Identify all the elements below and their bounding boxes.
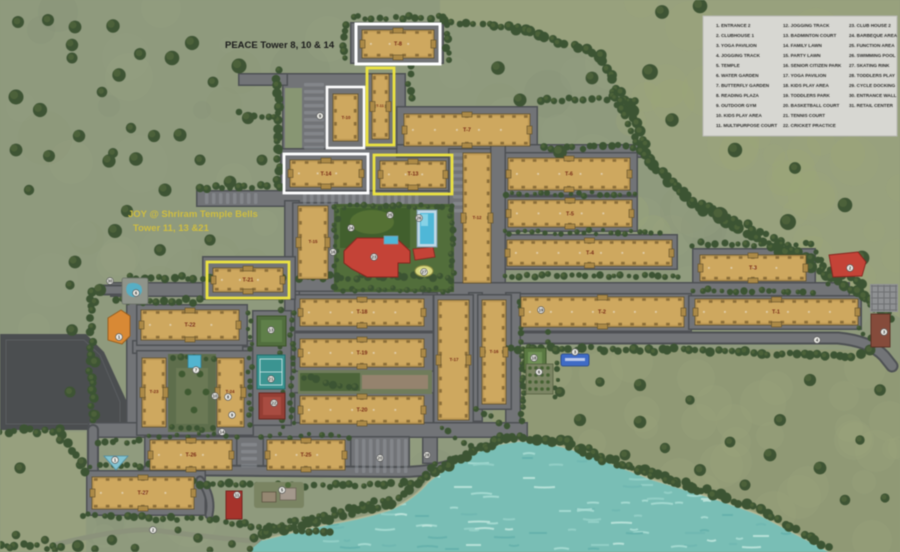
svg-text:T-27: T-27	[137, 490, 148, 496]
svg-text:T-26: T-26	[185, 452, 196, 458]
svg-text:T-25: T-25	[300, 452, 311, 458]
svg-text:8. READING PLAZA: 8. READING PLAZA	[716, 93, 760, 98]
svg-text:T-16: T-16	[489, 349, 499, 354]
svg-text:9. OUTDOOR GYM: 9. OUTDOOR GYM	[716, 103, 756, 108]
svg-text:17. YOGA PAVILION: 17. YOGA PAVILION	[783, 73, 827, 78]
svg-text:T-18: T-18	[356, 309, 367, 315]
svg-text:14: 14	[220, 430, 225, 435]
svg-text:26: 26	[417, 216, 422, 221]
svg-text:T-3: T-3	[749, 265, 757, 271]
svg-text:T-1: T-1	[772, 309, 780, 315]
svg-text:19. TODDLERS PARK: 19. TODDLERS PARK	[783, 93, 830, 98]
svg-text:21: 21	[269, 377, 274, 382]
svg-text:T-11: T-11	[376, 103, 385, 108]
svg-text:T-15: T-15	[308, 239, 318, 244]
svg-text:T-2: T-2	[598, 309, 606, 315]
svg-text:T-22: T-22	[184, 322, 195, 328]
svg-text:2. CLUBHOUSE 1: 2. CLUBHOUSE 1	[716, 33, 754, 38]
svg-text:19: 19	[539, 308, 544, 313]
svg-text:22: 22	[272, 401, 277, 406]
svg-text:6. WATER GARDEN: 6. WATER GARDEN	[716, 73, 759, 78]
svg-text:16. SENIOR CITIZEN PARK: 16. SENIOR CITIZEN PARK	[783, 63, 842, 68]
svg-text:T-13: T-13	[407, 171, 418, 177]
svg-text:25. FUNCTION AREA: 25. FUNCTION AREA	[849, 43, 895, 48]
svg-text:4. JOGGING TRACK: 4. JOGGING TRACK	[716, 53, 761, 58]
svg-text:24. BARBEQUE AREA: 24. BARBEQUE AREA	[849, 33, 898, 38]
svg-text:28. TODDLERS PLAY: 28. TODDLERS PLAY	[849, 73, 895, 78]
svg-text:16: 16	[331, 250, 336, 255]
svg-text:T-5: T-5	[566, 211, 574, 217]
svg-text:14. FAMILY LAWN: 14. FAMILY LAWN	[783, 43, 822, 48]
svg-text:22. CRICKET PRACTICE: 22. CRICKET PRACTICE	[783, 123, 836, 128]
svg-text:13: 13	[269, 328, 274, 333]
svg-text:T-7: T-7	[463, 127, 471, 133]
svg-text:23: 23	[372, 255, 377, 260]
svg-text:JOY @ Shriram Temple Bells: JOY @ Shriram Temple Bells	[128, 209, 258, 220]
svg-text:30: 30	[108, 279, 113, 284]
svg-text:T-8: T-8	[394, 41, 402, 47]
svg-text:T-6: T-6	[565, 171, 573, 177]
svg-text:Tower 11, 13 &21: Tower 11, 13 &21	[133, 223, 210, 234]
svg-text:20: 20	[378, 456, 383, 461]
svg-text:3. YOGA PAVILION: 3. YOGA PAVILION	[716, 43, 757, 48]
svg-text:T-21: T-21	[242, 277, 253, 283]
svg-text:T-4: T-4	[586, 250, 595, 256]
svg-text:11: 11	[235, 493, 240, 498]
svg-text:25: 25	[388, 213, 393, 218]
svg-text:T-10: T-10	[341, 115, 351, 120]
svg-text:20. BASKETBALL COURT: 20. BASKETBALL COURT	[783, 103, 840, 108]
svg-text:5. TEMPLE: 5. TEMPLE	[716, 63, 740, 68]
svg-text:T-19: T-19	[356, 350, 367, 356]
svg-text:29. CYCLE DOCKING: 29. CYCLE DOCKING	[849, 83, 896, 88]
svg-text:T-12: T-12	[472, 215, 482, 220]
svg-text:10. KIDS PLAY AREA: 10. KIDS PLAY AREA	[716, 113, 762, 118]
svg-text:T-17: T-17	[449, 357, 459, 362]
svg-text:18. KIDS PLAY AREA: 18. KIDS PLAY AREA	[783, 83, 829, 88]
svg-text:T-23: T-23	[149, 389, 159, 394]
svg-text:11. MULTIPURPOSE COURT: 11. MULTIPURPOSE COURT	[716, 123, 777, 128]
svg-text:7. BUTTERFLY GARDEN: 7. BUTTERFLY GARDEN	[716, 83, 770, 88]
svg-text:27. SKATING RINK: 27. SKATING RINK	[849, 63, 890, 68]
svg-text:30. ENTRANCE WALL: 30. ENTRANCE WALL	[849, 93, 897, 98]
svg-text:23. CLUB HOUSE 2: 23. CLUB HOUSE 2	[849, 23, 891, 28]
svg-text:12. JOGGING TRACK: 12. JOGGING TRACK	[783, 23, 830, 28]
svg-text:26. SWIMMING POOL: 26. SWIMMING POOL	[849, 53, 896, 58]
svg-text:18: 18	[532, 356, 537, 361]
svg-text:13. BADMINTON COURT: 13. BADMINTON COURT	[783, 33, 836, 38]
svg-text:24: 24	[349, 226, 354, 231]
svg-text:15. PARTY LAWN: 15. PARTY LAWN	[783, 53, 821, 58]
svg-text:10: 10	[213, 394, 218, 399]
svg-text:PEACE Tower 8, 10 & 14: PEACE Tower 8, 10 & 14	[225, 40, 335, 51]
svg-text:28: 28	[425, 453, 430, 458]
svg-text:T-14: T-14	[320, 171, 332, 177]
svg-text:27: 27	[422, 270, 427, 275]
svg-text:21. TENNIS COURT: 21. TENNIS COURT	[783, 113, 825, 118]
svg-text:31. RETAIL CENTER: 31. RETAIL CENTER	[849, 103, 894, 108]
svg-text:T-20: T-20	[356, 407, 367, 413]
svg-text:1. ENTRANCE 2: 1. ENTRANCE 2	[716, 23, 751, 28]
